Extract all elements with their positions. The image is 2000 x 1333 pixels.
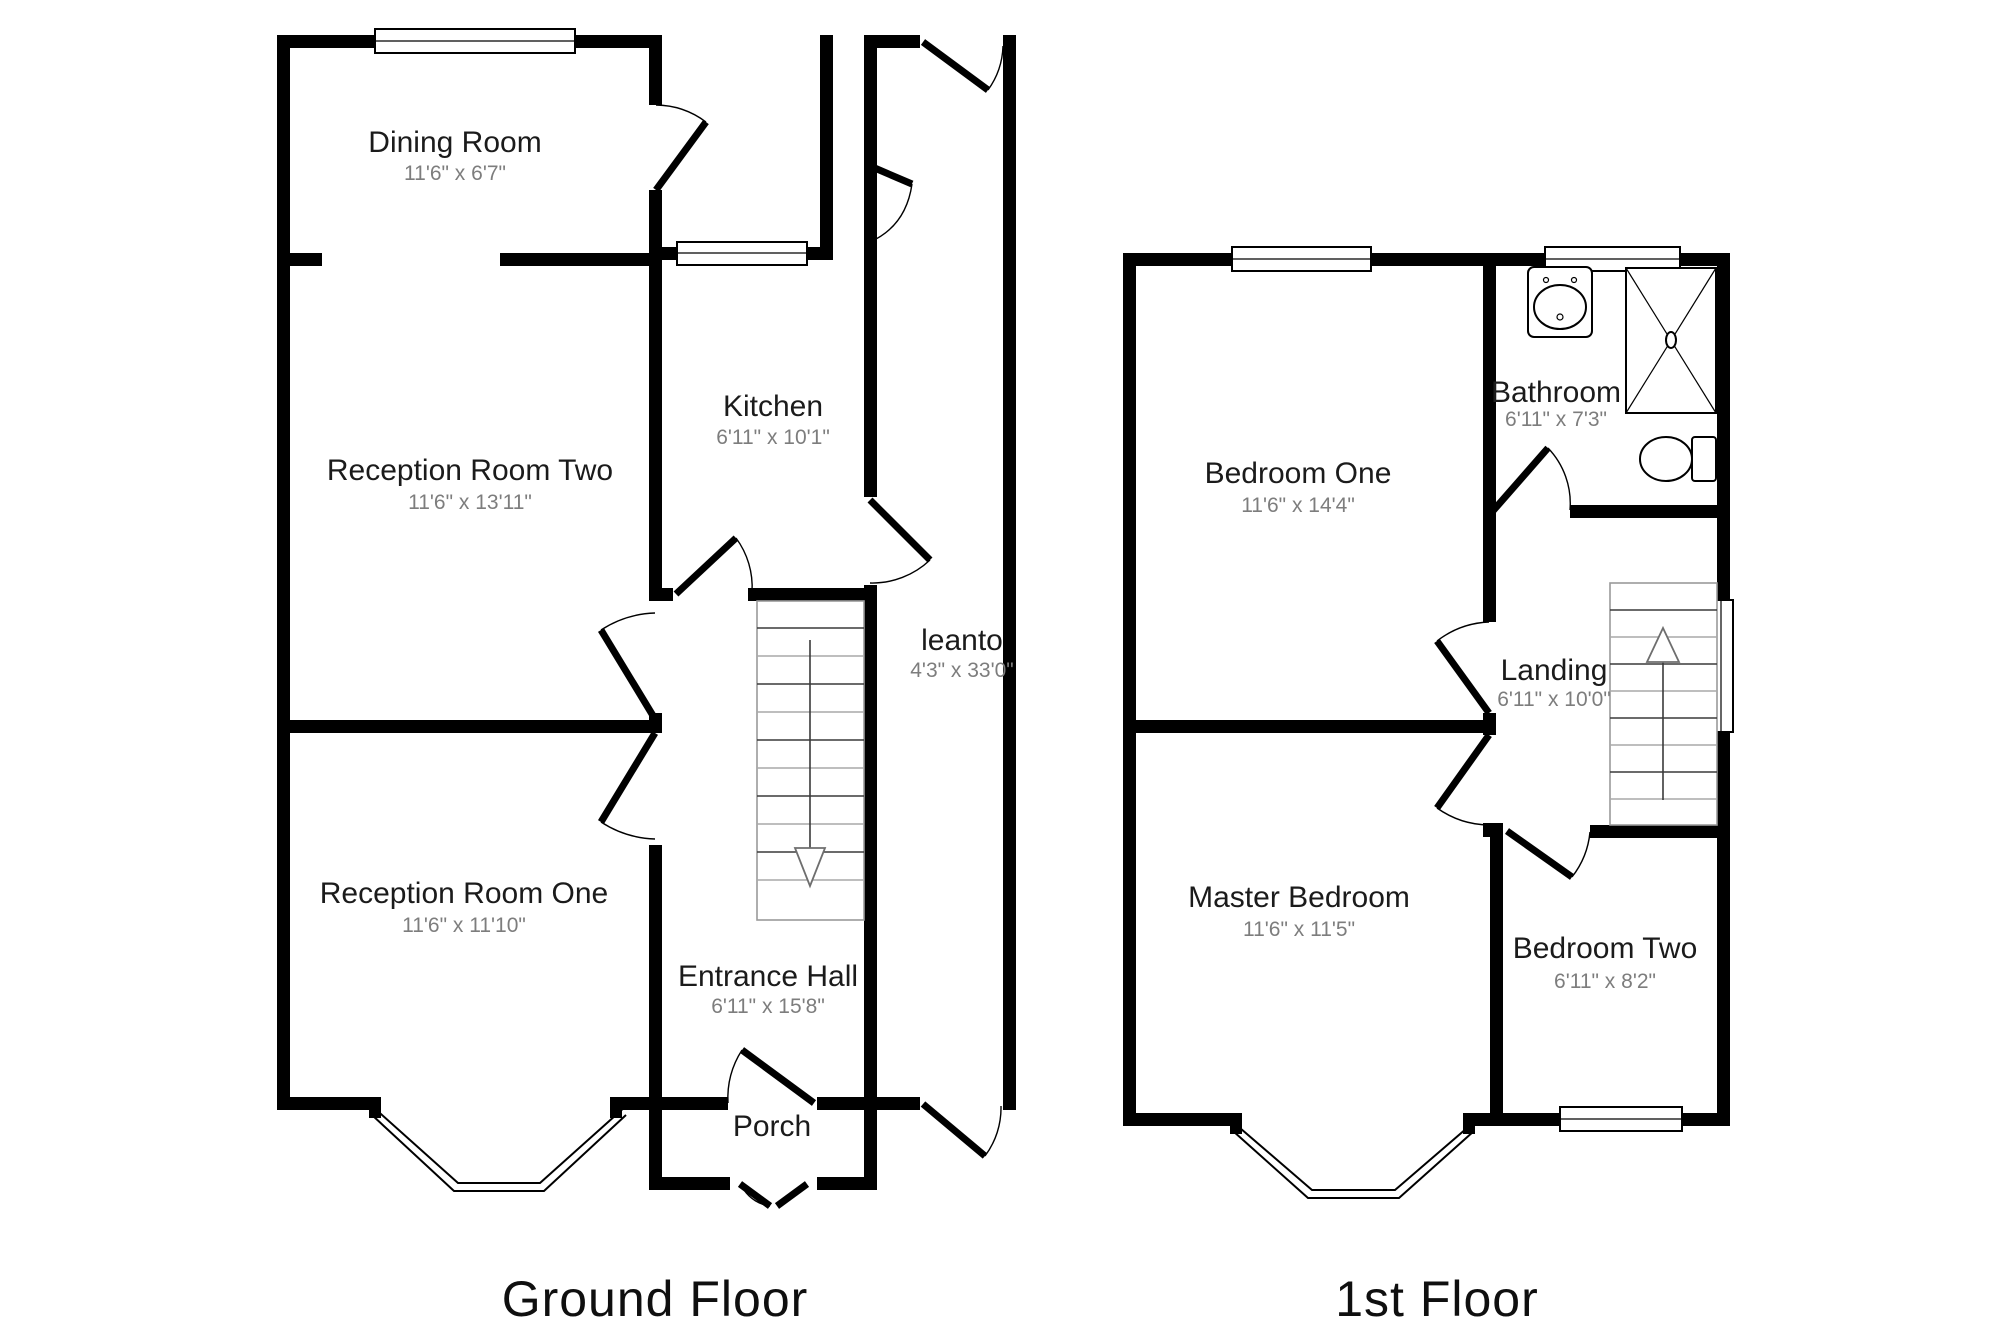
front-door (728, 1050, 814, 1103)
kitchen-to-leanto-door (870, 500, 930, 583)
wall-segment (1590, 825, 1717, 838)
room-label-reception-room-two: Reception Room Two (327, 454, 613, 487)
wall-segment (864, 35, 877, 497)
bedroom-two-door (1507, 831, 1590, 877)
toilet (1640, 437, 1716, 481)
wall-segment (1474, 1113, 1560, 1126)
wall-segment (1123, 253, 1136, 1126)
room-dims-entrance-hall: 6'11" x 15'8" (711, 995, 825, 1018)
wall-segment (500, 253, 649, 266)
wall-segment (649, 845, 662, 1110)
dining-room-door (656, 105, 706, 190)
wall-segment (1490, 837, 1503, 1113)
wall-segment (649, 1097, 728, 1110)
room-dims-bathroom: 6'11" x 7'3" (1505, 408, 1607, 431)
room-label-entrance-hall: Entrance Hall (678, 960, 858, 993)
room-dims-leanto: 4'3" x 33'0" (910, 659, 1014, 682)
wall-segment (277, 720, 649, 733)
bedroom-one-window (1232, 247, 1371, 271)
wall-segment (820, 35, 833, 260)
ground-floor-bay-window (372, 1106, 626, 1191)
floorplan-drawing: Dining Room 11'6" x 6'7" Reception Room … (0, 0, 2000, 1333)
wall-segment (1123, 1113, 1230, 1126)
floorplan-page: Dining Room 11'6" x 6'7" Reception Room … (0, 0, 2000, 1333)
wall-segment (277, 35, 290, 1110)
wall-segment (748, 588, 877, 601)
bedroom-two-window (1560, 1107, 1682, 1131)
leanto-top-door (923, 42, 1003, 90)
wall-segment (864, 585, 877, 1097)
room-dims-dining-room: 11'6" x 6'7" (404, 162, 506, 185)
wall-segment (277, 253, 322, 266)
bathroom-sink (1528, 267, 1592, 337)
wall-segment (817, 1177, 877, 1190)
dining-room-window (375, 29, 575, 53)
room-dims-reception-room-two: 11'6" x 13'11" (408, 491, 532, 514)
room-label-bedroom-one: Bedroom One (1205, 457, 1392, 490)
reception-two-door (601, 613, 655, 719)
room-dims-bedroom-two: 6'11" x 8'2" (1554, 970, 1656, 993)
room-dims-master-bedroom: 11'6" x 11'5" (1243, 918, 1355, 941)
ground-floor-title: Ground Floor (502, 1271, 809, 1327)
kitchen-window (677, 242, 807, 265)
master-bedroom-door (1437, 735, 1489, 825)
room-label-master-bedroom: Master Bedroom (1188, 881, 1410, 914)
wall-segment (277, 1097, 369, 1110)
room-label-bathroom: Bathroom (1491, 376, 1621, 409)
porch-doors (740, 1184, 807, 1206)
room-label-landing: Landing (1501, 654, 1608, 687)
bathroom-door (1492, 448, 1570, 512)
shower-tray (1626, 268, 1716, 413)
ground-floor-stairs (757, 601, 864, 920)
wall-segment (817, 1097, 920, 1110)
room-label-dining-room: Dining Room (368, 126, 541, 159)
wall-segment (649, 1177, 730, 1190)
room-dims-kitchen: 6'11" x 10'1" (716, 426, 830, 449)
bedroom-one-door (1437, 622, 1489, 713)
wall-segment (1570, 505, 1730, 518)
bathroom-fixtures (1528, 267, 1716, 481)
room-dims-landing: 6'11" x 10'0" (1497, 688, 1611, 711)
wall-segment (649, 588, 673, 601)
reception-one-door (601, 733, 655, 839)
wall-segment (1682, 1113, 1730, 1126)
wall-segment (1483, 253, 1496, 622)
first-floor-bay-window (1233, 1122, 1474, 1198)
room-dims-bedroom-one: 11'6" x 14'4" (1241, 494, 1355, 517)
kitchen-door (676, 538, 752, 594)
room-label-bedroom-two: Bedroom Two (1513, 932, 1698, 965)
first-floor-plan: Bedroom One 11'6" x 14'4" Bathroom 6'11"… (1123, 247, 1733, 1327)
room-label-kitchen: Kitchen (723, 390, 823, 423)
first-floor-stairs (1610, 583, 1717, 825)
wall-segment (1123, 720, 1496, 733)
room-label-porch: Porch (733, 1110, 811, 1143)
wall-segment (1003, 35, 1016, 1110)
wall-segment (649, 35, 662, 105)
ground-floor-plan: Dining Room 11'6" x 6'7" Reception Room … (277, 29, 1016, 1327)
wall-segment (864, 35, 920, 48)
room-dims-reception-room-one: 11'6" x 11'10" (402, 914, 526, 937)
leanto-bottom-door (923, 1104, 1001, 1156)
room-label-leanto: leanto (921, 624, 1003, 657)
room-label-reception-room-one: Reception Room One (320, 877, 609, 910)
first-floor-labels: Bedroom One 11'6" x 14'4" Bathroom 6'11"… (1188, 376, 1697, 1327)
first-floor-title: 1st Floor (1335, 1271, 1539, 1327)
